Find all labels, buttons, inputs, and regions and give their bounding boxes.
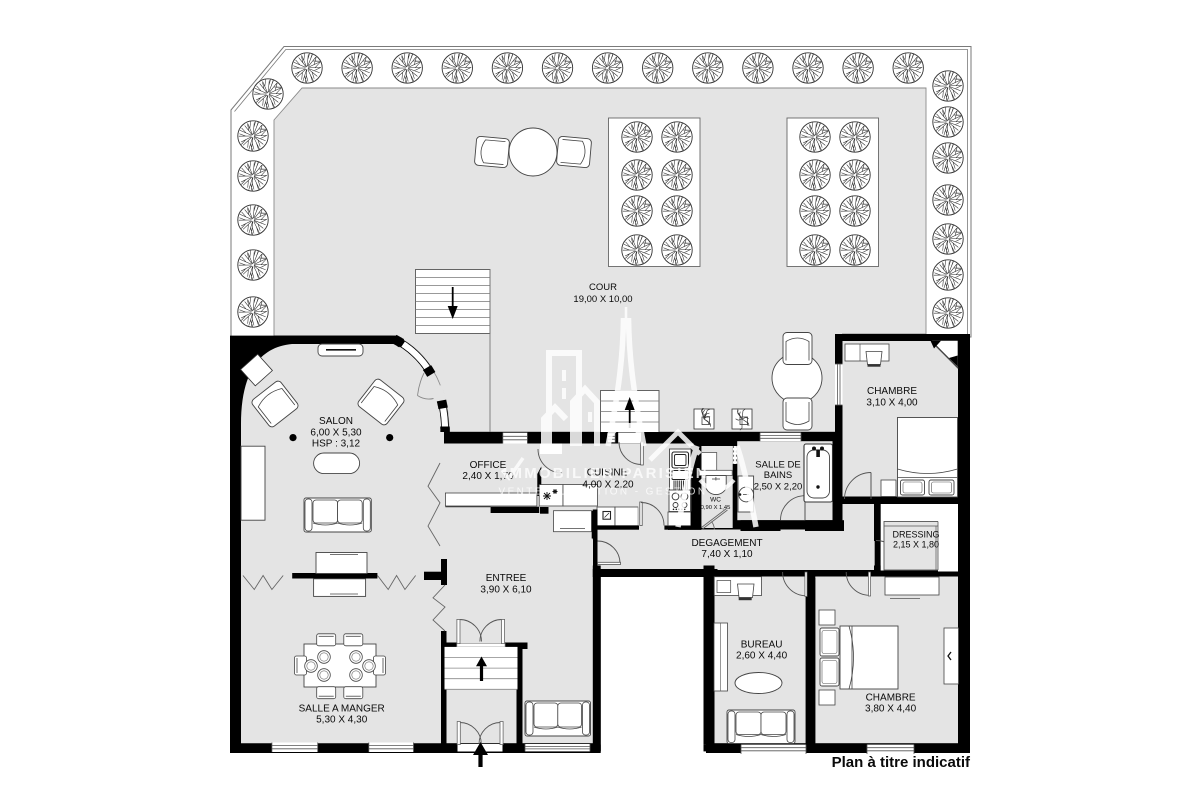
svg-text:7,40 X 1,10: 7,40 X 1,10 <box>701 549 753 560</box>
svg-text:CHAMBRE: CHAMBRE <box>866 693 916 704</box>
svg-text:CHAMBRE: CHAMBRE <box>867 386 917 397</box>
svg-text:2,60 X 4,40: 2,60 X 4,40 <box>736 651 788 662</box>
svg-text:3,90 X 6,10: 3,90 X 6,10 <box>480 585 532 596</box>
svg-text:19,00 X 10,00: 19,00 X 10,00 <box>573 294 632 305</box>
svg-text:SALON: SALON <box>319 416 353 427</box>
svg-text:SALLE A MANGER: SALLE A MANGER <box>299 704 385 715</box>
svg-text:0,90 X 1,45: 0,90 X 1,45 <box>701 505 731 511</box>
svg-text:OFFICE: OFFICE <box>470 460 507 471</box>
svg-text:Plan à titre indicatif: Plan à titre indicatif <box>832 754 971 771</box>
svg-text:5,30 X 4,30: 5,30 X 4,30 <box>316 715 368 726</box>
svg-text:BAINS: BAINS <box>764 470 793 481</box>
svg-text:VENTE - LOCATION - GESTION: VENTE - LOCATION - GESTION <box>499 487 708 498</box>
svg-text:ENTREE: ENTREE <box>486 573 527 584</box>
svg-text:HSP : 3,12: HSP : 3,12 <box>312 439 361 450</box>
svg-text:DEGAGEMENT: DEGAGEMENT <box>691 538 762 549</box>
svg-text:3,80 X 4,40: 3,80 X 4,40 <box>865 704 917 715</box>
svg-text:BUREAU: BUREAU <box>741 640 783 651</box>
svg-text:2,15 X 1,80: 2,15 X 1,80 <box>893 540 939 550</box>
svg-text:SALLE DE: SALLE DE <box>755 460 800 471</box>
svg-text:DRESSING: DRESSING <box>892 530 939 540</box>
svg-text:6,00 X 5,30: 6,00 X 5,30 <box>310 428 362 439</box>
svg-text:COUR: COUR <box>589 282 617 293</box>
svg-text:WC: WC <box>710 497 721 504</box>
svg-text:IMMOBILIER PARISIEN: IMMOBILIER PARISIEN <box>503 465 709 482</box>
svg-text:2,50 X 2,20: 2,50 X 2,20 <box>754 482 803 493</box>
svg-text:3,10 X 4,00: 3,10 X 4,00 <box>866 398 918 409</box>
